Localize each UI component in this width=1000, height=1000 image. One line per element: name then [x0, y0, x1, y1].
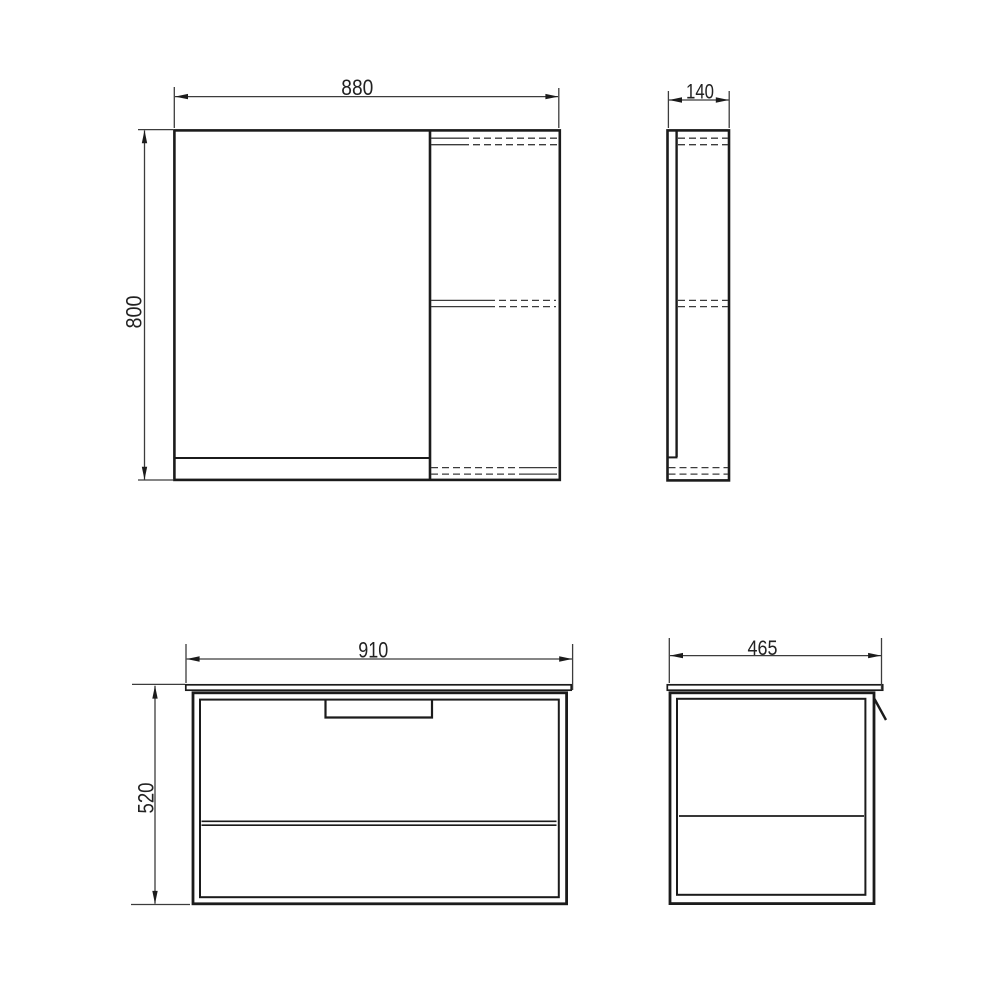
svg-text:910: 910 [358, 637, 388, 662]
svg-text:800: 800 [122, 296, 147, 329]
svg-text:465: 465 [748, 637, 778, 660]
svg-text:520: 520 [134, 783, 159, 814]
svg-text:880: 880 [341, 75, 373, 100]
svg-text:140: 140 [686, 81, 714, 104]
